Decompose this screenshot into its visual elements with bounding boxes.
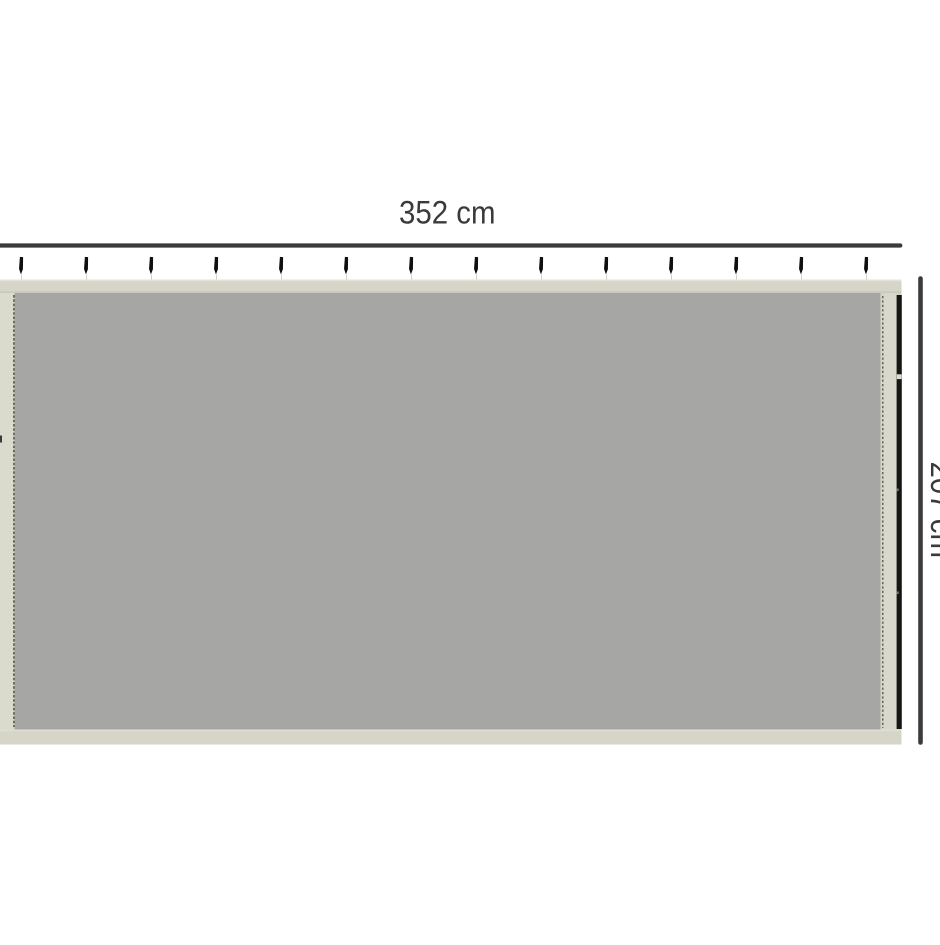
svg-text:352 cm: 352 cm <box>399 195 496 231</box>
svg-text:207 cm: 207 cm <box>924 462 940 559</box>
